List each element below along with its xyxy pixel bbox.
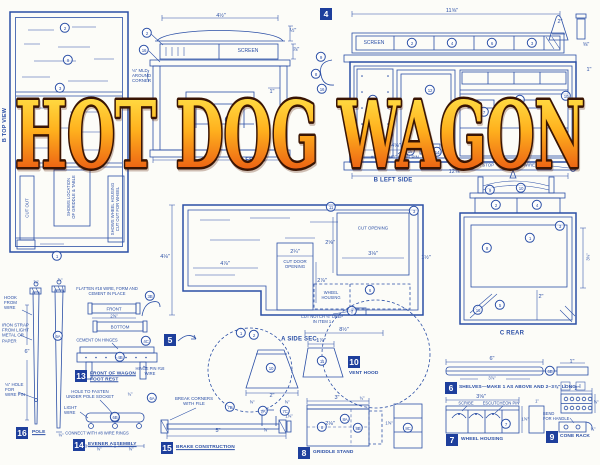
part-number-badge: 15 <box>161 442 173 454</box>
part-number-badge: 8 <box>298 447 310 459</box>
part-label: CONE RACK <box>560 434 590 440</box>
rear-view-drawing <box>460 170 586 324</box>
wheel-housing-drawing <box>446 397 544 433</box>
part-number-badge: 7 <box>446 434 458 446</box>
front-view-drawing <box>148 15 297 163</box>
evener-drawing <box>80 400 144 448</box>
part-number-badge: 9 <box>546 431 558 443</box>
part-number-badge: 5 <box>164 334 176 346</box>
part-number-badge: 16 <box>16 427 28 439</box>
part-number-badge: 10 <box>348 356 360 368</box>
part-label: VENT HOOD <box>349 371 378 377</box>
part-label: POLE <box>32 430 45 436</box>
part-label: FRONT OF WAGON FOOT REST <box>90 371 136 383</box>
side-section-drawing <box>169 205 430 412</box>
pole-drawing <box>18 280 65 432</box>
cone-rack-drawing <box>559 388 595 432</box>
blueprint-line-art <box>0 0 600 465</box>
top-view-drawing <box>10 12 128 252</box>
part-number-badge: 4 <box>320 8 332 20</box>
left-side-view-drawing <box>320 11 586 179</box>
brake-drawing <box>161 408 291 439</box>
part-number-badge: 14 <box>73 439 85 451</box>
part-label: GRIDDLE STAND <box>313 450 353 456</box>
plan-sheet: B TOP VIEWCUT OUTSHOWS LOCATION OF GRIDD… <box>0 0 600 465</box>
part-number-badge: 13 <box>75 370 87 382</box>
part-label: SHELVES—MAKE 1 AS ABOVE AND 2–3⅞" LONG <box>459 385 576 391</box>
part-number-badge: 6 <box>445 382 457 394</box>
part-label: BRAKE CONSTRUCTION <box>176 445 235 451</box>
part-label: EVENER ASSEMBLY <box>88 442 137 448</box>
part-label: WHEEL HOUSING <box>461 437 503 443</box>
vent-hood-drawing <box>246 341 343 396</box>
